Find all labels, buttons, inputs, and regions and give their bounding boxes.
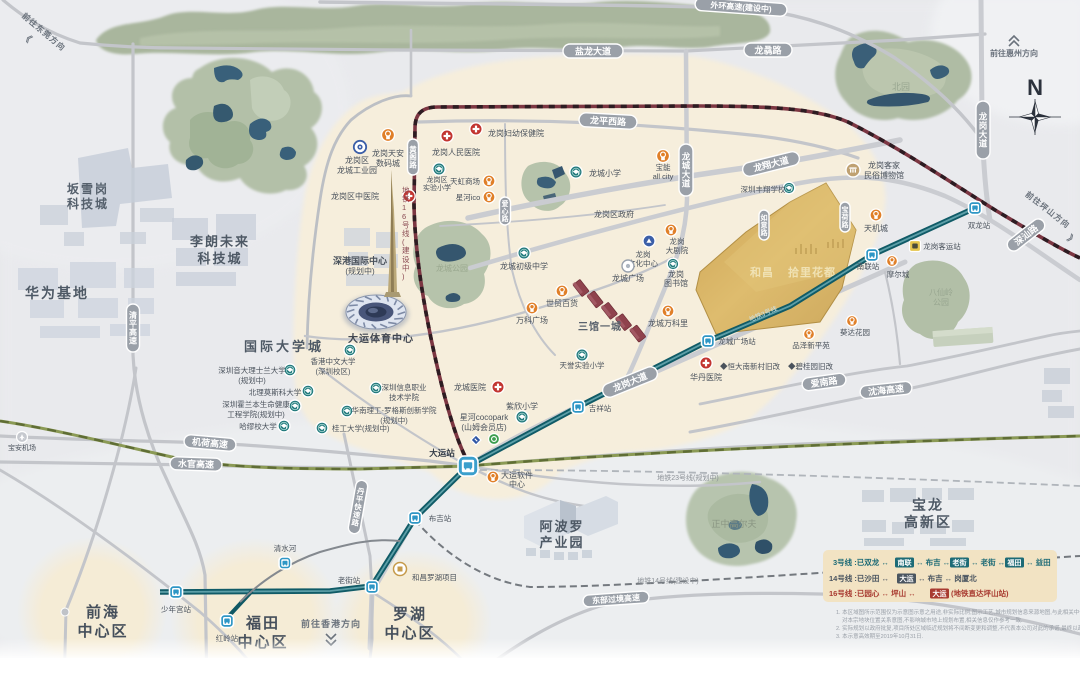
svg-text:all city: all city [653, 172, 674, 181]
svg-text:N: N [1027, 75, 1043, 100]
svg-text:龙岗区政府: 龙岗区政府 [594, 209, 634, 219]
svg-text:龙岗区: 龙岗区 [345, 155, 369, 165]
svg-text:葵达花园: 葵达花园 [840, 327, 870, 337]
svg-text:宝能: 宝能 [656, 162, 671, 172]
svg-text:和昌罗湖项目: 和昌罗湖项目 [412, 573, 457, 582]
svg-text:宝龙: 宝龙 [912, 497, 944, 513]
svg-text:香港中文大学: 香港中文大学 [311, 356, 356, 366]
svg-text:正中高尔夫: 正中高尔夫 [711, 518, 756, 529]
svg-text:大剧院: 大剧院 [666, 245, 689, 255]
svg-text:罗湖: 罗湖 [393, 606, 427, 623]
svg-text:龙岗客家: 龙岗客家 [868, 160, 900, 170]
svg-text:龙平西路: 龙平西路 [589, 114, 628, 127]
svg-text:1. 本区域图所示范围仅为示意图示意之用途,非实际比例,图示: 1. 本区域图所示范围仅为示意图示意之用途,非实际比例,图示工艺,城市规划信息来… [836, 608, 1080, 616]
svg-text:水官高速: 水官高速 [178, 458, 214, 470]
svg-text:龙岗大道: 龙岗大道 [978, 112, 988, 149]
svg-text:老街: 老街 [952, 558, 967, 567]
svg-text:和昌: 和昌 [750, 265, 774, 279]
svg-text:盐龙大道: 盐龙大道 [575, 45, 611, 56]
svg-text:龙城小学: 龙城小学 [589, 168, 621, 178]
svg-text:(规划中): (规划中) [345, 266, 375, 276]
svg-text:实验小学: 实验小学 [423, 183, 451, 192]
svg-text:老街站: 老街站 [338, 575, 361, 585]
svg-text:龙城广场站: 龙城广场站 [718, 336, 756, 346]
svg-text:科技城: 科技城 [67, 196, 109, 211]
svg-text:南联: 南联 [898, 558, 913, 567]
svg-text:清平高速: 清平高速 [129, 310, 137, 345]
svg-text:品泽新平苑: 品泽新平苑 [792, 340, 830, 350]
svg-text:天誉实验小学: 天誉实验小学 [560, 360, 605, 370]
svg-text:↔ 布吉 ↔: ↔ 布吉 ↔ [916, 557, 950, 567]
svg-text:中心: 中心 [509, 479, 525, 489]
svg-text:◆恒大南新村旧改: ◆恒大南新村旧改 [720, 361, 780, 371]
svg-text:哈缪校大学: 哈缪校大学 [239, 421, 277, 431]
svg-text:龙城医院: 龙城医院 [454, 382, 486, 392]
svg-text:北理莫斯科大学: 北理莫斯科大学 [249, 387, 302, 397]
svg-text:地铁16号线(建设中): 地铁16号线(建设中) [402, 185, 410, 281]
svg-text:星河ico: 星河ico [456, 193, 481, 202]
svg-text:龙岗客运站: 龙岗客运站 [923, 241, 961, 251]
svg-text:民俗博物馆: 民俗博物馆 [864, 170, 904, 180]
svg-text:清水河: 清水河 [274, 543, 297, 553]
svg-text:深圳音大理士兰大学: 深圳音大理士兰大学 [218, 365, 286, 375]
svg-text:产业园: 产业园 [539, 535, 584, 550]
svg-text:深圳丰翔学校: 深圳丰翔学校 [741, 184, 786, 194]
svg-text:龙城工业园: 龙城工业园 [337, 165, 377, 175]
svg-text:少年宫站: 少年宫站 [161, 604, 191, 614]
svg-text:2. 实际规划以政府批复,项目所处区域临近规划将不间断变更和: 2. 实际规划以政府批复,项目所处区域临近规划将不间断变更和调整,不代表本公司对… [836, 624, 1080, 632]
svg-text:拾里花都: 拾里花都 [788, 265, 836, 279]
svg-text:华南理工-罗格斯创新学院: 华南理工-罗格斯创新学院 [352, 405, 437, 415]
svg-text:华丹医院: 华丹医院 [690, 372, 722, 382]
svg-text:华为基地: 华为基地 [25, 285, 89, 301]
svg-text:爱心路: 爱心路 [502, 199, 510, 223]
svg-text:前往惠州方向: 前往惠州方向 [990, 48, 1038, 58]
svg-text:福田: 福田 [1007, 558, 1022, 567]
svg-text:龙城初级中学: 龙城初级中学 [500, 261, 548, 271]
svg-text:龙城广场: 龙城广场 [612, 273, 644, 283]
svg-text:大运体育中心: 大运体育中心 [348, 332, 414, 345]
svg-text:三馆一城: 三馆一城 [578, 320, 622, 333]
svg-text:桂工大学(规划中): 桂工大学(规划中) [332, 423, 390, 433]
svg-text:宝荷路: 宝荷路 [841, 205, 850, 229]
svg-text:↔ 老街 ↔: ↔ 老街 ↔ [971, 557, 1005, 567]
svg-text:宝安机场: 宝安机场 [8, 443, 36, 452]
svg-text:大运: 大运 [933, 589, 948, 598]
svg-text:地铁23号线(规划中): 地铁23号线(规划中) [657, 473, 718, 482]
svg-text:紫欣小学: 紫欣小学 [506, 401, 538, 411]
svg-text:吉祥站: 吉祥站 [589, 403, 612, 413]
svg-text:(地铁直达坪山站): (地铁直达坪山站) [951, 588, 1009, 598]
svg-text:北园: 北园 [892, 82, 910, 92]
svg-text:世贸百货: 世贸百货 [546, 298, 578, 308]
svg-text:16号线 :已园心 ↔ 坪山 ↔: 16号线 :已园心 ↔ 坪山 ↔ [829, 588, 916, 598]
svg-text:龙岗: 龙岗 [670, 236, 685, 246]
svg-text:龙城公园: 龙城公园 [436, 263, 468, 273]
svg-text:南联站: 南联站 [857, 261, 880, 271]
svg-text:星河cocopark: 星河cocopark [460, 412, 509, 422]
svg-text:龙岗: 龙岗 [636, 249, 651, 259]
svg-text:摩尔城: 摩尔城 [887, 269, 910, 279]
svg-text:地铁14号线(建设中): 地铁14号线(建设中) [637, 576, 698, 585]
svg-text:八仙岭: 八仙岭 [929, 287, 953, 297]
svg-text:14号线 :已沙田 ↔: 14号线 :已沙田 ↔ [829, 573, 889, 583]
svg-text:龙岗区: 龙岗区 [427, 175, 448, 184]
svg-text:大运软件: 大运软件 [501, 470, 533, 480]
svg-text:工程学院(规划中): 工程学院(规划中) [227, 409, 285, 419]
svg-text:高新区: 高新区 [904, 514, 952, 530]
svg-text:天虹商场: 天虹商场 [450, 176, 480, 186]
svg-text:龙城大道: 龙城大道 [681, 152, 691, 189]
svg-text:龙岗: 龙岗 [668, 269, 684, 279]
svg-text:阿波罗: 阿波罗 [539, 519, 584, 534]
svg-text:福田: 福田 [245, 614, 280, 632]
svg-text:大运站: 大运站 [429, 448, 455, 458]
svg-text:(规划中): (规划中) [238, 375, 266, 385]
svg-text:黄阁路: 黄阁路 [409, 144, 417, 170]
svg-text:李朗未来: 李朗未来 [189, 234, 250, 249]
svg-text:对本宗地块位置关系意图,不影响城市地上规划布置,相关信息仅作: 对本宗地块位置关系意图,不影响城市地上规划布置,相关信息仅作参考一致. [842, 616, 1023, 624]
svg-text:大运: 大运 [900, 574, 915, 583]
svg-text:天机城: 天机城 [864, 223, 888, 233]
svg-text:中心区: 中心区 [77, 622, 128, 640]
svg-text:龙岗天安: 龙岗天安 [372, 148, 404, 158]
svg-text:深圳霍兰本生命健康: 深圳霍兰本生命健康 [222, 399, 290, 409]
svg-text:3. 本示意高效期至2019年10月31日.: 3. 本示意高效期至2019年10月31日. [836, 632, 924, 640]
svg-text:如意路: 如意路 [761, 213, 769, 237]
svg-text:前往香港方向: 前往香港方向 [301, 618, 361, 629]
svg-text:前海: 前海 [86, 603, 120, 621]
svg-text:◆碧桂园旧改: ◆碧桂园旧改 [788, 361, 833, 371]
svg-text:↔ 布吉 ↔ 岗厦北: ↔ 布吉 ↔ 岗厦北 [918, 573, 977, 583]
svg-text:(山姆会员店): (山姆会员店) [461, 422, 507, 432]
svg-text:龙岗妇幼保健院: 龙岗妇幼保健院 [488, 128, 544, 138]
svg-text:龙岗区中医院: 龙岗区中医院 [331, 191, 379, 201]
svg-text:3号线 :已双龙 ↔: 3号线 :已双龙 ↔ [833, 557, 889, 567]
svg-text:公园: 公园 [933, 298, 949, 307]
svg-text:龙骉路: 龙骉路 [753, 44, 782, 55]
svg-text:万科广场: 万科广场 [516, 315, 548, 325]
svg-text:双龙站: 双龙站 [968, 220, 991, 230]
svg-text:坂雪岗: 坂雪岗 [67, 181, 109, 196]
svg-text:技术学院: 技术学院 [389, 392, 419, 402]
svg-text:深港国际中心: 深港国际中心 [333, 255, 387, 266]
svg-text:龙岗人民医院: 龙岗人民医院 [432, 147, 480, 157]
svg-text:龙城万科里: 龙城万科里 [648, 318, 688, 328]
svg-text:数码城: 数码城 [376, 158, 400, 168]
svg-text:国际大学城: 国际大学城 [244, 339, 324, 354]
svg-text:↔ 益田: ↔ 益田 [1026, 557, 1051, 567]
svg-text:布吉站: 布吉站 [429, 513, 452, 523]
svg-text:图书馆: 图书馆 [664, 278, 688, 288]
svg-text:(深圳校区): (深圳校区) [316, 366, 351, 376]
svg-text:深圳信息职业: 深圳信息职业 [382, 382, 427, 392]
svg-text:科技城: 科技城 [197, 251, 242, 266]
